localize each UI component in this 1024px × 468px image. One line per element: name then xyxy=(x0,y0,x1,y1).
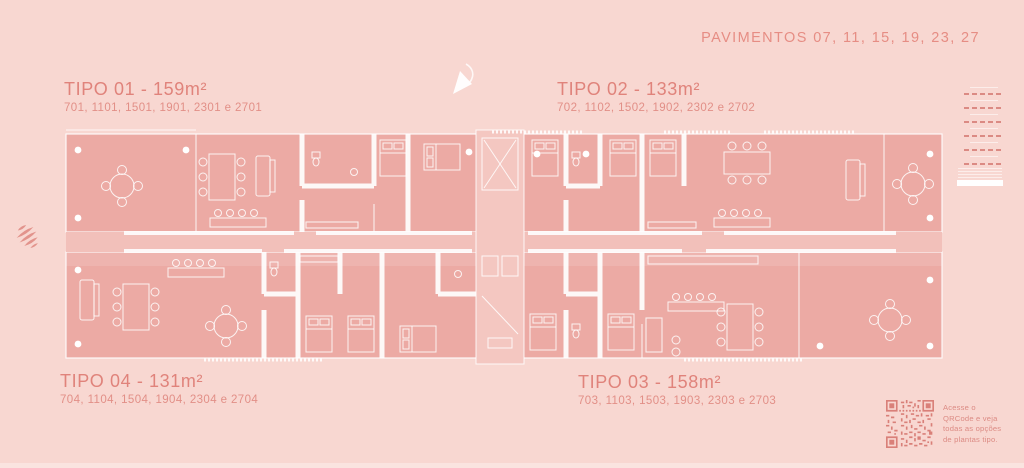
tipo-01-title: TIPO 01 - 159m² xyxy=(64,79,262,99)
tipo-01-label: TIPO 01 - 159m² 701, 1101, 1501, 1901, 2… xyxy=(64,79,262,116)
bottom-edge-strip xyxy=(0,463,1024,468)
tipo-02-label: TIPO 02 - 133m² 702, 1102, 1502, 1902, 2… xyxy=(557,79,755,116)
tipo-01-units: 701, 1101, 1501, 1901, 2301 e 2701 xyxy=(64,101,262,116)
pavimentos-label: PAVIMENTOS 07, 11, 15, 19, 23, 27 xyxy=(701,30,980,46)
tipo-04-title: TIPO 04 - 131m² xyxy=(60,371,258,391)
qr-caption-line: todas as opções xyxy=(943,424,1001,435)
page-background: PAVIMENTOS 07, 11, 15, 19, 23, 27 TIPO 0… xyxy=(0,0,1024,468)
tipo-02-units: 702, 1102, 1502, 1902, 2302 e 2702 xyxy=(557,101,755,116)
circulation-core xyxy=(476,130,524,364)
qr-caption: Acesse o QRCode e veja todas as opções d… xyxy=(943,400,1001,445)
brand-mark-icon xyxy=(11,218,45,261)
floor-plan xyxy=(64,128,945,366)
tipo-04-units: 704, 1104, 1504, 1904, 2304 e 2704 xyxy=(60,393,258,408)
qr-caption-line: de plantas tipo. xyxy=(943,435,1001,446)
building-elevation-diagram xyxy=(950,84,1008,190)
qr-code xyxy=(886,400,934,448)
qr-caption-line: QRCode e veja xyxy=(943,414,1001,425)
qr-block: Acesse o QRCode e veja todas as opções d… xyxy=(886,400,1001,448)
qr-caption-line: Acesse o xyxy=(943,403,1001,414)
north-arrow-icon xyxy=(446,62,484,109)
tipo-03-units: 703, 1103, 1503, 1903, 2303 e 2703 xyxy=(578,394,776,409)
tipo-04-label: TIPO 04 - 131m² 704, 1104, 1504, 1904, 2… xyxy=(60,371,258,408)
tipo-03-title: TIPO 03 - 158m² xyxy=(578,372,776,392)
tipo-03-label: TIPO 03 - 158m² 703, 1103, 1503, 1903, 2… xyxy=(578,372,776,409)
elevation-base xyxy=(957,180,1003,186)
tipo-02-title: TIPO 02 - 133m² xyxy=(557,79,755,99)
